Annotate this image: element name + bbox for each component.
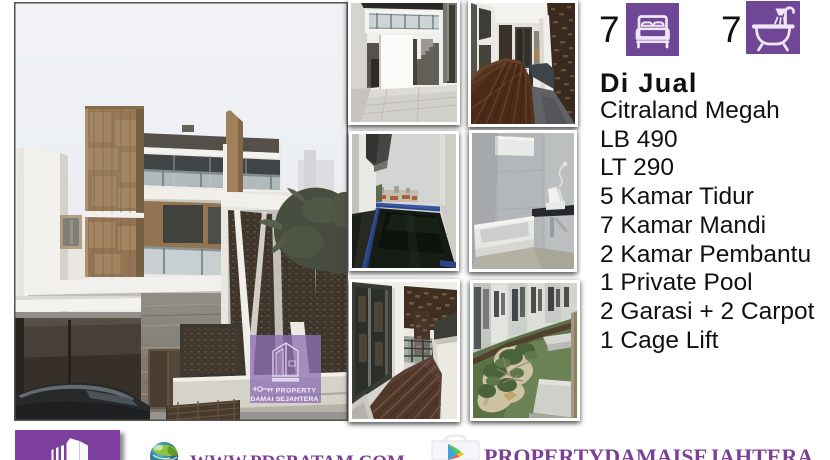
svg-text:DAMAI SEJAHTERA: DAMAI SEJAHTERA bbox=[250, 396, 318, 403]
svg-text:PROPERTY: PROPERTY bbox=[276, 388, 317, 395]
